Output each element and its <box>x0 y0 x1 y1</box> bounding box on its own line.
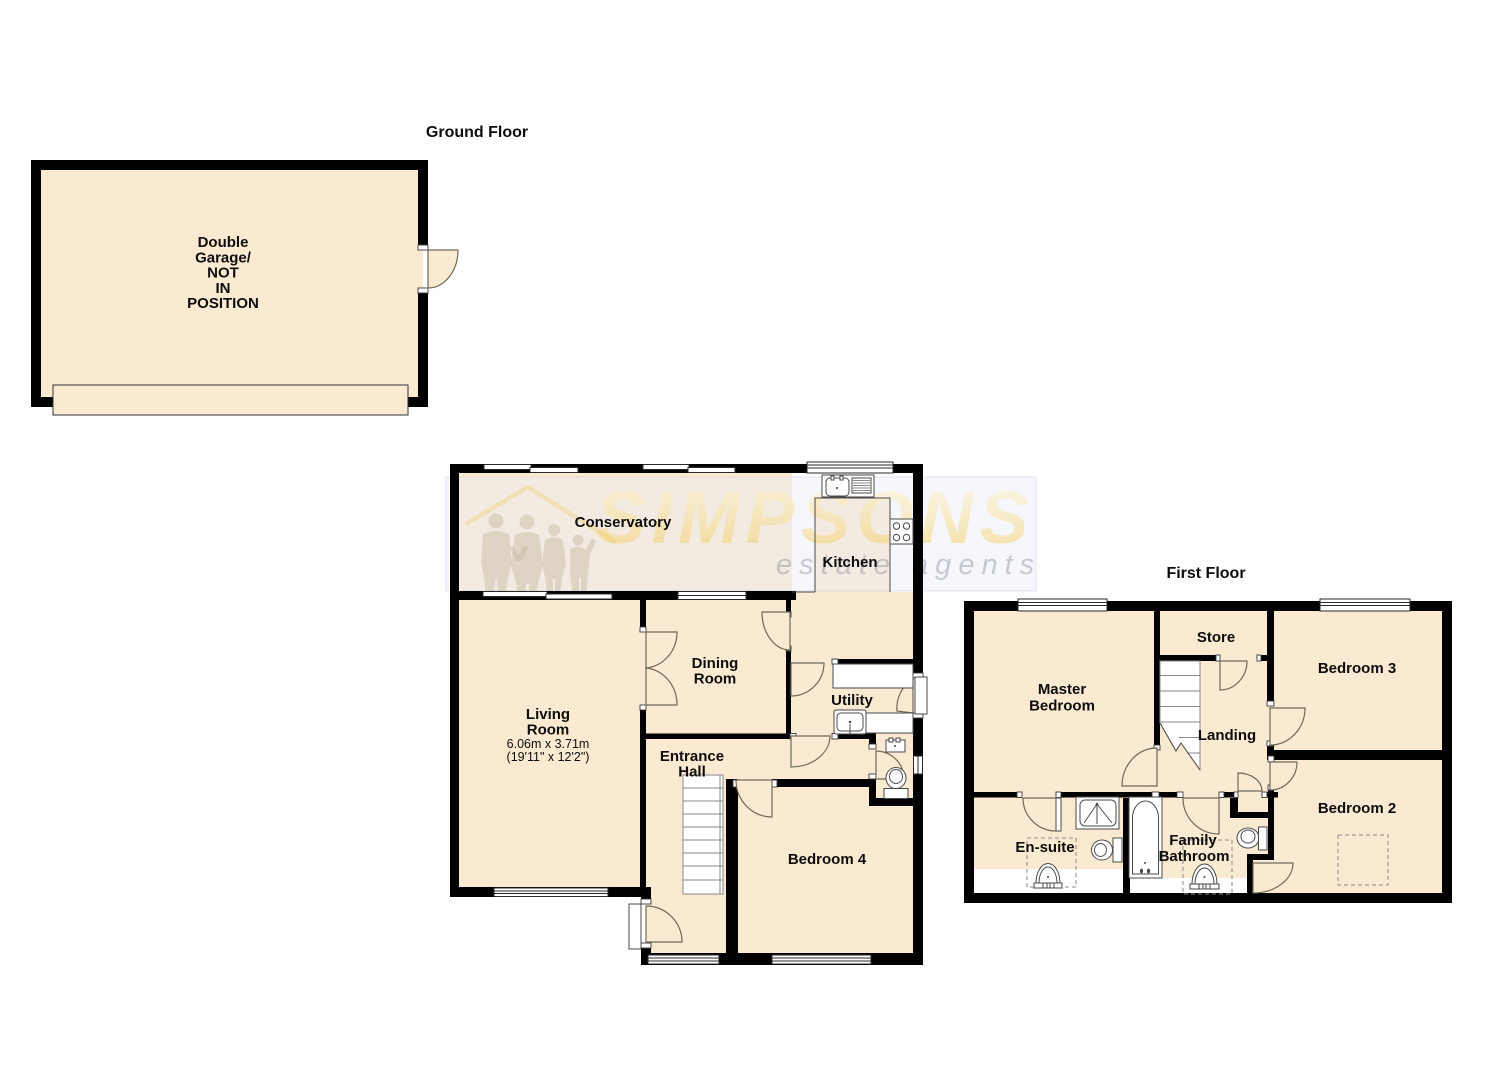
svg-text:Store: Store <box>1197 629 1235 646</box>
svg-text:First Floor: First Floor <box>1166 565 1245 582</box>
svg-text:Landing: Landing <box>1198 727 1256 744</box>
svg-text:MasterBedroom: MasterBedroom <box>1029 681 1095 715</box>
svg-text:Bedroom 2: Bedroom 2 <box>1318 800 1396 817</box>
svg-text:Bedroom 3: Bedroom 3 <box>1318 660 1396 677</box>
svg-text:Utility: Utility <box>831 692 873 709</box>
svg-text:LivingRoom: LivingRoom <box>526 706 570 739</box>
svg-text:Ground Floor: Ground Floor <box>426 124 528 141</box>
svg-text:6.06m x 3.71m(19'11" x 12'2"): 6.06m x 3.71m(19'11" x 12'2") <box>507 737 590 764</box>
svg-text:Conservatory: Conservatory <box>575 514 672 531</box>
svg-text:DiningRoom: DiningRoom <box>692 655 739 688</box>
svg-text:En-suite: En-suite <box>1015 839 1074 856</box>
svg-text:Bedroom 4: Bedroom 4 <box>788 851 867 868</box>
svg-text:estate agents: estate agents <box>776 549 1041 581</box>
svg-text:Kitchen: Kitchen <box>822 554 877 571</box>
